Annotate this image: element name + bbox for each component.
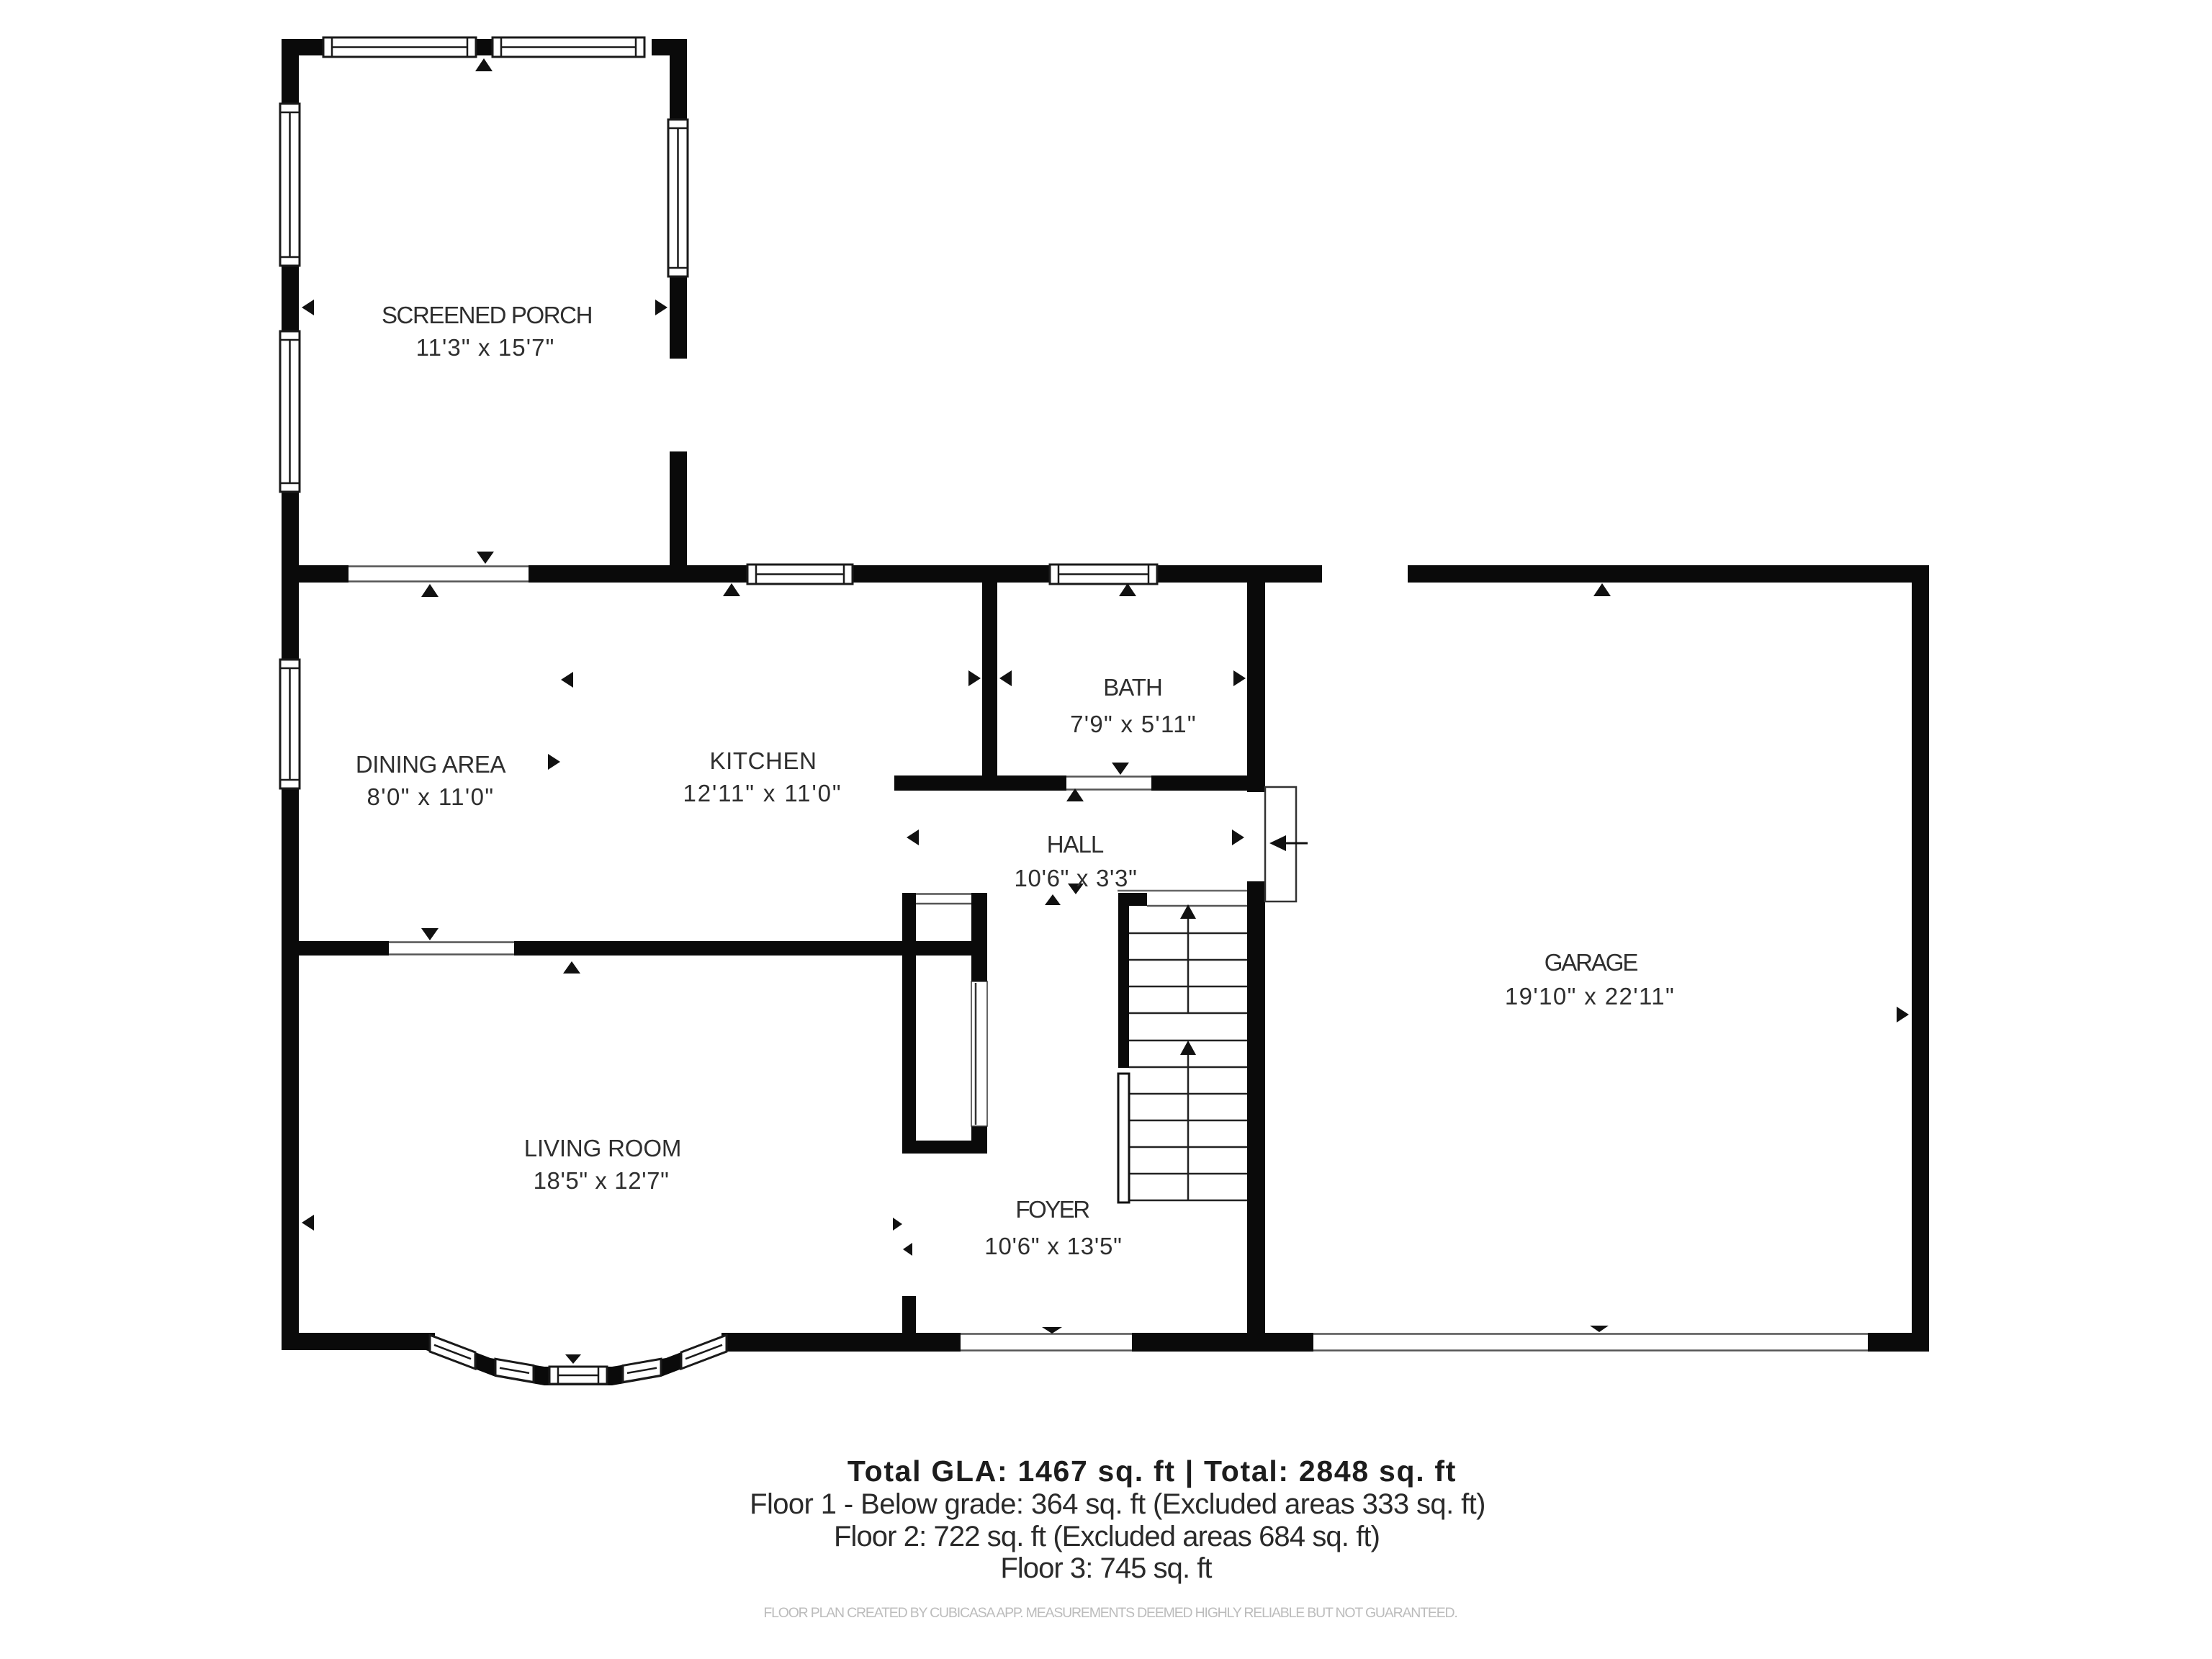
svg-text:7'9" x 5'11": 7'9" x 5'11": [1070, 711, 1197, 737]
svg-text:8'0" x 11'0": 8'0" x 11'0": [367, 783, 495, 810]
svg-text:Floor 2: 722 sq. ft (Excluded: Floor 2: 722 sq. ft (Excluded areas 684 …: [834, 1521, 1380, 1552]
svg-text:19'10" x 22'11": 19'10" x 22'11": [1505, 983, 1675, 1010]
svg-text:KITCHEN: KITCHEN: [709, 747, 817, 774]
svg-text:FOYER: FOYER: [1015, 1196, 1089, 1223]
svg-text:SCREENED PORCH: SCREENED PORCH: [382, 302, 592, 328]
svg-text:12'11" x 11'0": 12'11" x 11'0": [683, 780, 842, 806]
svg-text:Total GLA: 1467 sq. ft | Total: Total GLA: 1467 sq. ft | Total: 2848 sq.…: [848, 1455, 1457, 1488]
svg-text:11'3" x 15'7": 11'3" x 15'7": [416, 334, 555, 361]
svg-text:FLOOR PLAN CREATED BY CUBICASA: FLOOR PLAN CREATED BY CUBICASA APP. MEAS…: [763, 1605, 1457, 1621]
svg-text:10'6" x 13'5": 10'6" x 13'5": [984, 1233, 1122, 1259]
svg-text:Floor 3: 745 sq. ft: Floor 3: 745 sq. ft: [1000, 1552, 1212, 1584]
svg-text:Floor 1 - Below grade: 364 sq.: Floor 1 - Below grade: 364 sq. ft (Exclu…: [750, 1488, 1485, 1520]
svg-text:10'6" x 3'3": 10'6" x 3'3": [1014, 865, 1137, 891]
svg-text:BATH: BATH: [1103, 674, 1162, 701]
svg-text:18'5" x 12'7": 18'5" x 12'7": [534, 1167, 670, 1194]
svg-text:DINING AREA: DINING AREA: [356, 751, 506, 778]
svg-text:LIVING ROOM: LIVING ROOM: [524, 1135, 681, 1161]
svg-text:HALL: HALL: [1047, 831, 1104, 858]
svg-text:GARAGE: GARAGE: [1545, 949, 1638, 976]
